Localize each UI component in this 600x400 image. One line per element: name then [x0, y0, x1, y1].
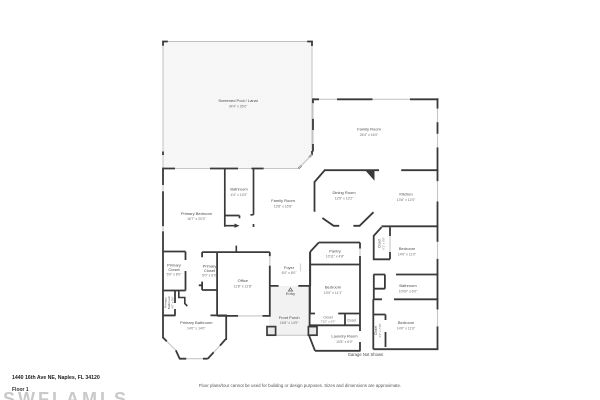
svg-text:Bedroom: Bedroom [399, 246, 416, 251]
svg-text:10'8" x 6'0": 10'8" x 6'0" [336, 340, 354, 344]
svg-text:16'8" x 14'9": 16'8" x 14'9" [280, 321, 299, 325]
svg-text:Entry: Entry [286, 291, 295, 296]
svg-text:Dining Room: Dining Room [332, 190, 356, 195]
svg-text:6'1" x 6'0": 6'1" x 6'0" [382, 237, 386, 250]
svg-text:4'0" x 8'6": 4'0" x 8'6" [171, 296, 175, 308]
svg-text:10'00" x 6'0": 10'00" x 6'0" [399, 290, 418, 294]
svg-text:Closet: Closet [168, 267, 180, 272]
svg-text:Screened Pool / Lanai: Screened Pool / Lanai [218, 98, 257, 103]
svg-text:26'4" x 16'0": 26'4" x 16'0" [360, 133, 379, 137]
svg-text:13'6" x 12'0": 13'6" x 12'0" [397, 198, 416, 202]
svg-text:Closet: Closet [347, 319, 357, 323]
svg-text:Foyer: Foyer [284, 265, 295, 270]
svg-text:14'0" x 11'6": 14'0" x 11'6" [397, 327, 416, 331]
svg-text:13'8" x 16'8": 13'8" x 16'8" [274, 205, 293, 209]
svg-text:Office: Office [238, 278, 249, 283]
svg-text:Family Room: Family Room [357, 127, 381, 132]
svg-text:Family Room: Family Room [271, 198, 295, 203]
svg-text:14'0" x 14'0": 14'0" x 14'0" [187, 327, 206, 331]
svg-text:Primary Bathroom: Primary Bathroom [180, 320, 213, 325]
svg-text:11'8" x 12'8": 11'8" x 12'8" [234, 285, 253, 289]
svg-text:Bedroom: Bedroom [398, 320, 415, 325]
svg-text:10'11" x 4'8": 10'11" x 4'8" [326, 255, 345, 259]
svg-text:Front Porch: Front Porch [279, 315, 300, 320]
svg-text:6'0" x 8'0": 6'0" x 8'0" [282, 271, 298, 275]
svg-text:16'7" x 20'3": 16'7" x 20'3" [187, 217, 206, 221]
svg-text:Bathroom: Bathroom [399, 283, 417, 288]
svg-text:7'10" x 2'0": 7'10" x 2'0" [321, 320, 336, 324]
svg-text:Bedroom: Bedroom [325, 285, 342, 290]
svg-text:6'0" x 8'0": 6'0" x 8'0" [167, 273, 183, 277]
svg-text:Bathroom: Bathroom [230, 187, 248, 192]
svg-text:Pantry: Pantry [329, 249, 341, 254]
svg-text:4'4" x 10'0": 4'4" x 10'0" [231, 193, 249, 197]
svg-text:Laundry Room: Laundry Room [331, 334, 358, 339]
svg-text:Kitchen: Kitchen [399, 192, 412, 197]
svg-text:Closet: Closet [204, 268, 216, 273]
svg-text:10'0" x 11'1": 10'0" x 11'1" [324, 291, 343, 295]
svg-text:5'0" x 6'0": 5'0" x 6'0" [202, 274, 218, 278]
svg-text:14'0" x 11'0": 14'0" x 11'0" [398, 253, 417, 257]
svg-text:12'6" x 13'2": 12'6" x 13'2" [335, 197, 354, 201]
svg-text:Garage Not Shown: Garage Not Shown [348, 352, 384, 357]
svg-text:3'1" x 7'10": 3'1" x 7'10" [378, 323, 382, 337]
svg-text:Primary Bedroom: Primary Bedroom [181, 211, 213, 216]
svg-text:34'4" x 35'0": 34'4" x 35'0" [229, 105, 248, 109]
